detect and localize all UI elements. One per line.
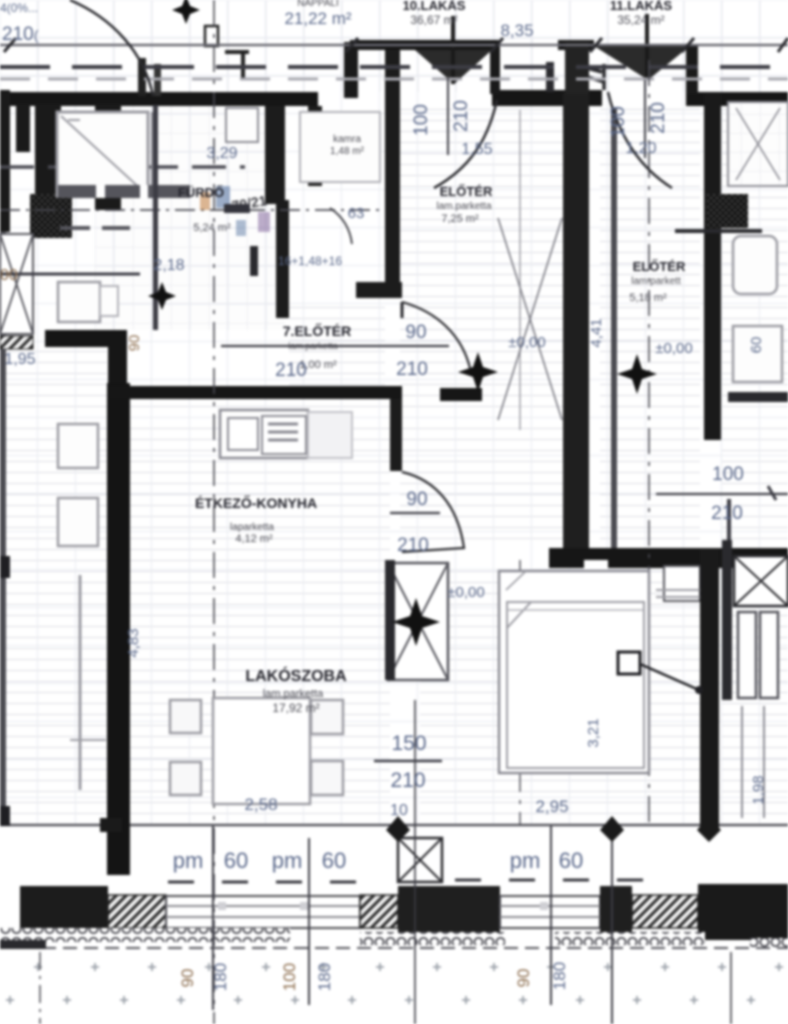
svg-text:laparketta: laparketta: [230, 522, 274, 533]
svg-text:180: 180: [315, 963, 334, 991]
svg-text:210: 210: [451, 100, 472, 132]
svg-text:90: 90: [178, 969, 197, 988]
svg-text:5,18 m²: 5,18 m²: [629, 292, 667, 304]
svg-text:16+1,48+16: 16+1,48+16: [278, 254, 342, 268]
svg-text:90: 90: [406, 489, 427, 510]
svg-text:5,24 m²: 5,24 m²: [193, 222, 231, 234]
svg-text:150: 150: [391, 732, 426, 755]
svg-text:17,92 m²: 17,92 m²: [272, 701, 319, 715]
svg-text:4,41: 4,41: [588, 318, 605, 347]
svg-text:100: 100: [712, 464, 744, 485]
svg-text:3,21: 3,21: [585, 718, 602, 747]
svg-text:lam.parkett: lam.parkett: [631, 276, 681, 287]
svg-text:±0,00: ±0,00: [447, 584, 484, 601]
svg-text:11.LAKÁS: 11.LAKÁS: [610, 0, 672, 13]
svg-text:210: 210: [397, 535, 429, 556]
svg-text:60: 60: [224, 848, 248, 873]
svg-text:1,98: 1,98: [750, 775, 767, 804]
svg-text:00: 00: [0, 267, 18, 284]
svg-text:60: 60: [322, 848, 346, 873]
svg-text:36,67 m²: 36,67 m²: [410, 13, 457, 27]
svg-text:8,35: 8,35: [500, 21, 533, 40]
svg-text:100: 100: [411, 104, 432, 136]
svg-text:4(0%...: 4(0%...: [0, 1, 38, 15]
svg-text:90: 90: [126, 335, 143, 352]
svg-text:210: 210: [396, 359, 428, 380]
svg-text:2,18: 2,18: [153, 257, 184, 274]
svg-text:kamra: kamra: [333, 134, 361, 145]
svg-text:FÜRDŐ: FÜRDŐ: [178, 185, 224, 200]
svg-text:4,12 m²: 4,12 m²: [235, 533, 273, 545]
svg-text:100: 100: [608, 106, 629, 138]
svg-text:210: 210: [275, 360, 307, 381]
svg-text:60: 60: [559, 848, 583, 873]
svg-text:60: 60: [748, 337, 765, 354]
svg-text:10.LAKÁS: 10.LAKÁS: [403, 0, 466, 13]
svg-text:210: 210: [648, 102, 669, 134]
svg-text:lam.parketta: lam.parketta: [436, 201, 491, 212]
svg-text:100: 100: [280, 963, 299, 991]
svg-text:pm: pm: [510, 848, 541, 873]
svg-text:35,24 m²: 35,24 m²: [617, 13, 664, 27]
svg-text:21,22 m²: 21,22 m²: [284, 9, 351, 28]
svg-text:210(: 210(: [2, 24, 39, 45]
svg-text:4,83: 4,83: [125, 628, 142, 657]
svg-text:1,48 m²: 1,48 m²: [330, 146, 365, 157]
svg-text:63: 63: [348, 205, 365, 222]
svg-text:lam.parketta: lam.parketta: [263, 688, 324, 700]
svg-text:210: 210: [711, 503, 743, 524]
svg-text:pm: pm: [173, 848, 204, 873]
svg-text:2,95: 2,95: [535, 797, 568, 816]
svg-text:±0,00: ±0,00: [655, 340, 692, 357]
svg-text:1,20: 1,20: [625, 140, 656, 157]
svg-text:1,55: 1,55: [461, 141, 492, 158]
svg-text:LAKÓSZOBA: LAKÓSZOBA: [245, 666, 347, 685]
svg-text:10: 10: [390, 802, 408, 819]
svg-text:210: 210: [390, 769, 425, 792]
svg-text:ÉTKEZŐ-KONYHA: ÉTKEZŐ-KONYHA: [195, 494, 317, 511]
svg-text:7,25 m²: 7,25 m²: [441, 213, 479, 225]
svg-text:2,58: 2,58: [244, 795, 277, 814]
svg-text:90: 90: [514, 969, 533, 988]
svg-text:ELŐTÉR: ELŐTÉR: [440, 184, 493, 199]
svg-text:180: 180: [211, 963, 230, 991]
svg-text:NAPPALI: NAPPALI: [297, 0, 339, 9]
svg-text:3,29: 3,29: [206, 145, 237, 162]
svg-text:pm: pm: [272, 848, 303, 873]
svg-text:7.ELŐTÉR: 7.ELŐTÉR: [283, 322, 351, 339]
svg-text:1,95: 1,95: [4, 351, 35, 368]
svg-text:±0,00: ±0,00: [508, 334, 545, 351]
svg-text:180: 180: [550, 962, 569, 990]
svg-text:ELŐTÉR: ELŐTÉR: [633, 259, 686, 274]
svg-text:90: 90: [405, 322, 426, 343]
